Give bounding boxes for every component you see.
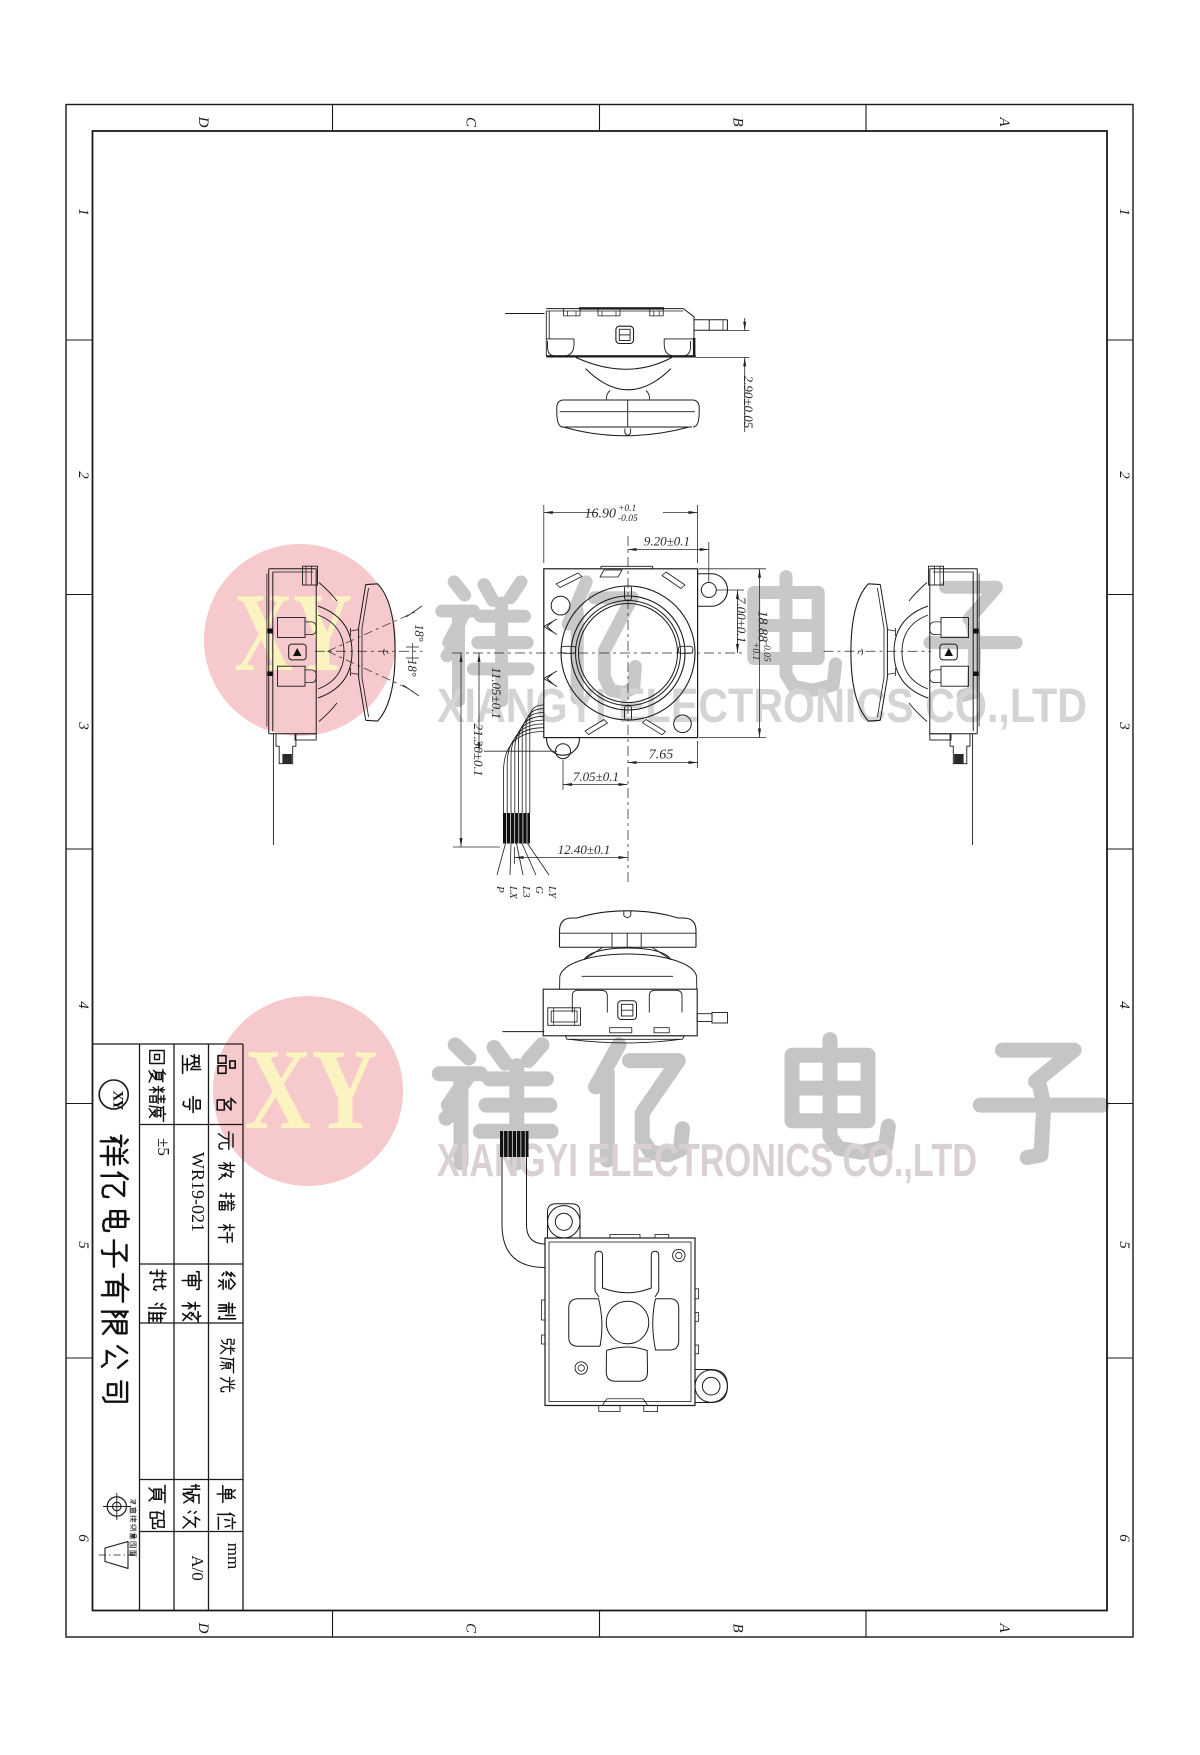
svg-text:12.40±0.1: 12.40±0.1 xyxy=(558,842,611,857)
svg-text:XY: XY xyxy=(110,1090,126,1110)
svg-text:7.00±0.1: 7.00±0.1 xyxy=(734,597,749,643)
svg-text:21.30±0.1: 21.30±0.1 xyxy=(471,724,486,777)
svg-text:6: 6 xyxy=(75,1534,91,1542)
svg-text:LX: LX xyxy=(507,885,519,900)
svg-text:G: G xyxy=(533,886,545,894)
svg-text:P: P xyxy=(494,885,506,893)
svg-text:A: A xyxy=(996,116,1012,127)
svg-text:18°: 18° xyxy=(405,659,419,677)
svg-text:XY: XY xyxy=(234,571,352,695)
svg-text:L3: L3 xyxy=(520,885,532,898)
svg-text:5: 5 xyxy=(1116,1241,1132,1249)
svg-text:9.20±0.1: 9.20±0.1 xyxy=(644,534,690,549)
svg-text:4: 4 xyxy=(1116,1001,1132,1009)
svg-text:-0.05: -0.05 xyxy=(618,514,638,524)
svg-text:3: 3 xyxy=(75,721,91,730)
svg-text:+0.1: +0.1 xyxy=(618,504,636,514)
svg-text:C: C xyxy=(463,1623,479,1634)
svg-text:1: 1 xyxy=(1116,208,1132,216)
svg-text:-0.05: -0.05 xyxy=(761,642,771,662)
svg-text:7.65: 7.65 xyxy=(649,748,674,763)
svg-text:11.05±0.1: 11.05±0.1 xyxy=(489,667,504,719)
svg-text:4: 4 xyxy=(75,1001,91,1009)
svg-text:2: 2 xyxy=(1116,471,1132,479)
svg-text:XY: XY xyxy=(245,1026,378,1154)
svg-text:D: D xyxy=(195,1622,211,1634)
svg-text:18.88: 18.88 xyxy=(755,611,770,643)
svg-text:2.90±0.05: 2.90±0.05 xyxy=(741,376,756,429)
svg-text:±5: ±5 xyxy=(154,1138,173,1156)
svg-text:A/0: A/0 xyxy=(188,1555,207,1581)
svg-text:mm: mm xyxy=(224,1543,243,1569)
svg-text:18°: 18° xyxy=(412,624,426,642)
svg-text:6: 6 xyxy=(1116,1534,1132,1542)
svg-text:B: B xyxy=(729,1623,745,1632)
svg-text:7.05±0.1: 7.05±0.1 xyxy=(573,769,619,784)
svg-text:16.90: 16.90 xyxy=(585,507,617,522)
svg-text:B: B xyxy=(729,117,745,126)
svg-text:+0.1: +0.1 xyxy=(750,642,760,660)
svg-text:C: C xyxy=(463,117,479,128)
svg-text:3: 3 xyxy=(1116,721,1132,730)
svg-text:1: 1 xyxy=(75,208,91,216)
svg-text:2: 2 xyxy=(75,471,91,479)
svg-text:D: D xyxy=(195,116,211,128)
svg-text:A: A xyxy=(996,1622,1012,1633)
svg-text:WR19-021: WR19-021 xyxy=(188,1152,208,1232)
svg-text:5: 5 xyxy=(75,1241,91,1249)
svg-text:LY: LY xyxy=(546,885,558,900)
